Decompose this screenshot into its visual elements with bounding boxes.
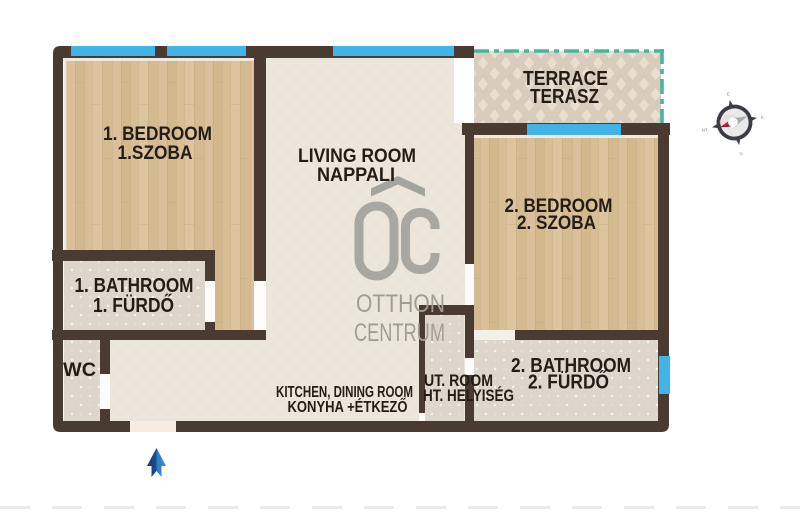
svg-text:TERASZ: TERASZ	[530, 86, 599, 108]
svg-text:HT. HELYISÉG: HT. HELYISÉG	[423, 386, 514, 405]
svg-text:1. BEDROOM: 1. BEDROOM	[103, 124, 212, 145]
svg-text:LIVING ROOM: LIVING ROOM	[298, 146, 416, 167]
svg-text:1.SZOBA: 1.SZOBA	[118, 143, 193, 164]
svg-text:1. BATHROOM: 1. BATHROOM	[75, 275, 194, 297]
svg-text:NAPPALI: NAPPALI	[317, 165, 395, 186]
svg-text:1. FÜRDŐ: 1. FÜRDŐ	[93, 294, 174, 317]
svg-text:2. FÜRDŐ: 2. FÜRDŐ	[528, 371, 609, 394]
svg-text:WC: WC	[63, 360, 96, 381]
svg-text:CENTRUM: CENTRUM	[354, 319, 445, 347]
svg-text:KONYHA +ÉTKEZŐ: KONYHA +ÉTKEZŐ	[288, 398, 408, 416]
svg-text:2. SZOBA: 2. SZOBA	[517, 213, 596, 234]
svg-text:OTTHON: OTTHON	[356, 290, 445, 318]
